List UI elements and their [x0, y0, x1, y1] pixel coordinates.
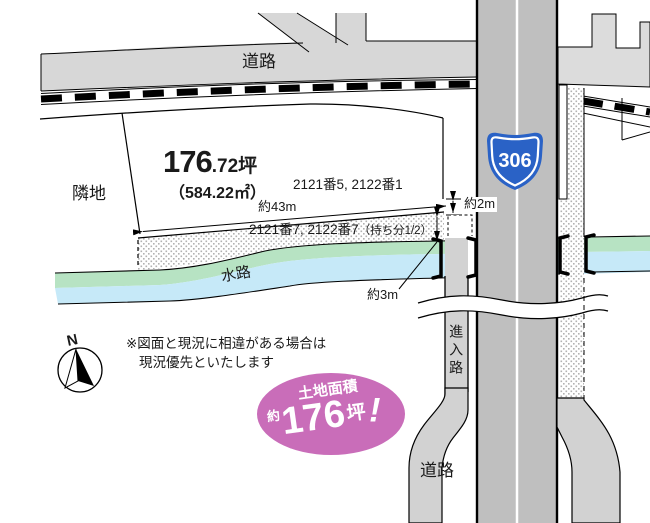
compass-icon: [58, 348, 102, 392]
gap-dimension-label: 約2m: [462, 197, 497, 212]
site-plan-drawing: [0, 0, 650, 523]
bottom-road-label: 道路: [420, 461, 454, 481]
parcel-lot-numbers: 2121番5, 2122番1: [293, 177, 403, 193]
badge-exclaim: !: [370, 396, 381, 427]
disclaimer-note-line2: 現況優先といたします: [139, 355, 274, 371]
top-road-label: 道路: [242, 52, 276, 72]
route-number-label: 306: [490, 150, 540, 173]
badge-approx: 約: [266, 405, 282, 426]
neighbor-land-label: 隣地: [72, 184, 106, 204]
approach-road-label: 進入路: [448, 324, 464, 378]
width-dimension-label: 約43m: [256, 200, 298, 215]
parcel-area-tsubo: 176.72坪: [163, 144, 257, 180]
parcel-area-m2: （584.22㎡）: [169, 179, 266, 203]
badge-value: 176: [280, 397, 348, 440]
site-plan: 道路 隣地 176.72坪 （584.22㎡） 2121番5, 2122番1 約…: [0, 0, 650, 523]
disclaimer-note-line1: ※図面と現況に相違がある場合は: [126, 336, 326, 352]
badge-unit: 坪: [345, 397, 368, 426]
main-road: [477, 0, 567, 523]
strip-lot-numbers: 2121番7, 2122番7（持ち分1/2）: [249, 222, 432, 238]
strip-depth-dimension-label: 約3m: [367, 288, 398, 303]
top-right-road: [558, 14, 650, 87]
